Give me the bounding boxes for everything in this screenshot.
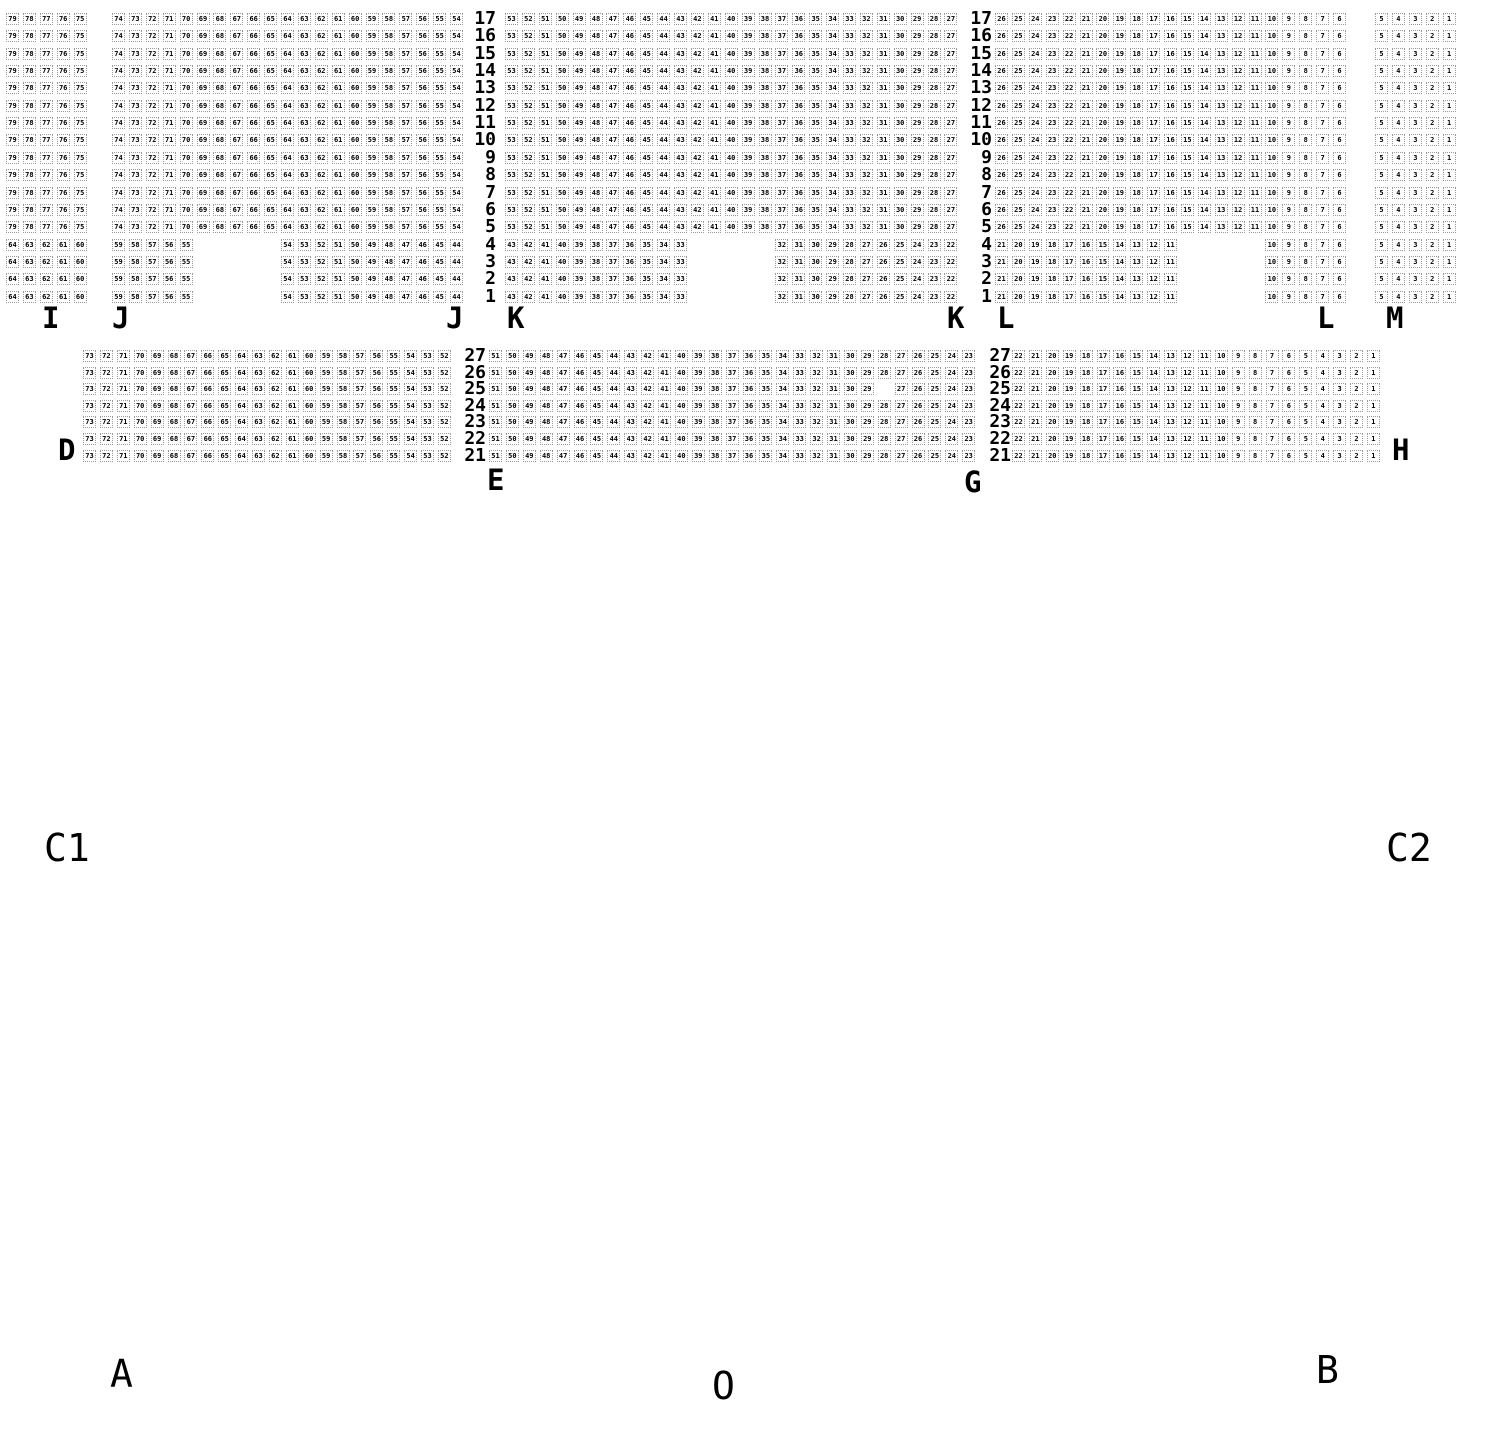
seat[interactable]: 8 xyxy=(1249,383,1262,395)
seat[interactable]: 62 xyxy=(315,204,328,216)
seat[interactable]: 10 xyxy=(1265,239,1278,251)
seat[interactable]: 77 xyxy=(40,100,53,112)
seat[interactable]: 29 xyxy=(911,30,924,42)
seat[interactable]: 43 xyxy=(624,367,637,379)
seat[interactable]: 29 xyxy=(911,48,924,60)
seat[interactable]: 41 xyxy=(658,400,671,412)
seat[interactable]: 65 xyxy=(264,134,277,146)
seat[interactable]: 11 xyxy=(1198,367,1211,379)
seat[interactable]: 61 xyxy=(332,117,345,129)
seat[interactable]: 79 xyxy=(6,221,19,233)
seat[interactable]: 44 xyxy=(657,13,670,25)
seat[interactable]: 48 xyxy=(590,48,603,60)
seat[interactable]: 51 xyxy=(489,416,502,428)
seat[interactable]: 35 xyxy=(809,204,822,216)
seat[interactable]: 72 xyxy=(146,204,159,216)
seat[interactable]: 22 xyxy=(1063,221,1076,233)
seat[interactable]: 71 xyxy=(117,416,130,428)
seat[interactable]: 8 xyxy=(1299,204,1312,216)
seat[interactable]: 25 xyxy=(1012,134,1025,146)
seat[interactable]: 24 xyxy=(911,291,924,303)
seat[interactable]: 44 xyxy=(657,117,670,129)
seat[interactable]: 7 xyxy=(1316,187,1329,199)
seat[interactable]: 18 xyxy=(1130,134,1143,146)
seat[interactable]: 67 xyxy=(230,204,243,216)
seat[interactable]: 17 xyxy=(1147,187,1160,199)
seat[interactable]: 30 xyxy=(844,400,857,412)
seat[interactable]: 60 xyxy=(349,221,362,233)
seat[interactable]: 13 xyxy=(1164,367,1177,379)
seat[interactable]: 24 xyxy=(1029,134,1042,146)
seat[interactable]: 52 xyxy=(438,433,451,445)
seat[interactable]: 50 xyxy=(556,48,569,60)
seat[interactable]: 38 xyxy=(709,433,722,445)
seat[interactable]: 14 xyxy=(1198,13,1211,25)
seat[interactable]: 66 xyxy=(201,383,214,395)
seat[interactable]: 36 xyxy=(792,100,805,112)
seat[interactable]: 18 xyxy=(1080,416,1093,428)
seat[interactable]: 68 xyxy=(213,30,226,42)
seat[interactable]: 22 xyxy=(1012,383,1025,395)
seat[interactable]: 7 xyxy=(1316,48,1329,60)
seat[interactable]: 68 xyxy=(213,100,226,112)
seat[interactable]: 40 xyxy=(725,30,738,42)
seat[interactable]: 12 xyxy=(1181,367,1194,379)
seat[interactable]: 23 xyxy=(928,239,941,251)
seat[interactable]: 45 xyxy=(640,100,653,112)
seat[interactable]: 63 xyxy=(252,350,265,362)
seat[interactable]: 42 xyxy=(691,204,704,216)
seat[interactable]: 16 xyxy=(1080,291,1093,303)
seat[interactable]: 66 xyxy=(247,13,260,25)
seat[interactable]: 9 xyxy=(1282,169,1295,181)
seat[interactable]: 56 xyxy=(163,273,176,285)
seat[interactable]: 29 xyxy=(911,117,924,129)
seat[interactable]: 67 xyxy=(230,221,243,233)
seat[interactable]: 13 xyxy=(1164,383,1177,395)
seat[interactable]: 76 xyxy=(57,134,70,146)
seat[interactable]: 70 xyxy=(180,82,193,94)
seat[interactable]: 79 xyxy=(6,13,19,25)
seat[interactable]: 50 xyxy=(349,291,362,303)
seat[interactable]: 66 xyxy=(247,100,260,112)
seat[interactable]: 44 xyxy=(657,221,670,233)
seat[interactable]: 14 xyxy=(1198,221,1211,233)
seat[interactable]: 41 xyxy=(658,383,671,395)
seat[interactable]: 53 xyxy=(298,256,311,268)
seat[interactable]: 1 xyxy=(1443,204,1456,216)
seat[interactable]: 30 xyxy=(844,416,857,428)
seat[interactable]: 60 xyxy=(303,433,316,445)
seat[interactable]: 11 xyxy=(1249,117,1262,129)
seat[interactable]: 39 xyxy=(573,291,586,303)
seat[interactable]: 21 xyxy=(995,256,1008,268)
seat[interactable]: 60 xyxy=(303,416,316,428)
seat[interactable]: 28 xyxy=(843,239,856,251)
seat[interactable]: 4 xyxy=(1392,169,1405,181)
seat[interactable]: 36 xyxy=(743,416,756,428)
seat[interactable]: 57 xyxy=(399,48,412,60)
seat[interactable]: 44 xyxy=(657,100,670,112)
seat[interactable]: 75 xyxy=(74,204,87,216)
seat[interactable]: 60 xyxy=(349,13,362,25)
seat[interactable]: 68 xyxy=(168,400,181,412)
seat[interactable]: 61 xyxy=(286,367,299,379)
seat[interactable]: 18 xyxy=(1130,152,1143,164)
seat[interactable]: 33 xyxy=(843,48,856,60)
seat[interactable]: 76 xyxy=(57,65,70,77)
seat[interactable]: 20 xyxy=(1046,350,1059,362)
seat[interactable]: 61 xyxy=(332,152,345,164)
seat[interactable]: 48 xyxy=(540,350,553,362)
seat[interactable]: 13 xyxy=(1215,48,1228,60)
seat[interactable]: 56 xyxy=(370,450,383,462)
seat[interactable]: 44 xyxy=(657,204,670,216)
seat[interactable]: 71 xyxy=(117,350,130,362)
seat[interactable]: 32 xyxy=(775,256,788,268)
seat[interactable]: 54 xyxy=(404,367,417,379)
seat[interactable]: 66 xyxy=(247,65,260,77)
seat[interactable]: 59 xyxy=(320,350,333,362)
seat[interactable]: 11 xyxy=(1249,100,1262,112)
seat[interactable]: 79 xyxy=(6,152,19,164)
seat[interactable]: 75 xyxy=(74,117,87,129)
seat[interactable]: 34 xyxy=(776,367,789,379)
seat[interactable]: 11 xyxy=(1249,169,1262,181)
seat[interactable]: 41 xyxy=(539,239,552,251)
seat[interactable]: 21 xyxy=(1080,65,1093,77)
seat[interactable]: 3 xyxy=(1409,117,1422,129)
seat[interactable]: 6 xyxy=(1333,117,1346,129)
seat[interactable]: 60 xyxy=(349,169,362,181)
seat[interactable]: 69 xyxy=(197,169,210,181)
seat[interactable]: 51 xyxy=(539,30,552,42)
seat[interactable]: 6 xyxy=(1333,291,1346,303)
seat[interactable]: 27 xyxy=(944,65,957,77)
seat[interactable]: 4 xyxy=(1392,221,1405,233)
seat[interactable]: 78 xyxy=(23,13,36,25)
seat[interactable]: 12 xyxy=(1232,65,1245,77)
seat[interactable]: 9 xyxy=(1282,13,1295,25)
seat[interactable]: 38 xyxy=(759,100,772,112)
seat[interactable]: 57 xyxy=(353,367,366,379)
seat[interactable]: 28 xyxy=(878,450,891,462)
seat[interactable]: 27 xyxy=(944,48,957,60)
seat[interactable]: 61 xyxy=(332,204,345,216)
seat[interactable]: 2 xyxy=(1350,433,1363,445)
seat[interactable]: 24 xyxy=(945,400,958,412)
seat[interactable]: 47 xyxy=(606,100,619,112)
seat[interactable]: 8 xyxy=(1249,367,1262,379)
seat[interactable]: 21 xyxy=(1029,416,1042,428)
seat[interactable]: 28 xyxy=(928,204,941,216)
seat[interactable]: 50 xyxy=(556,187,569,199)
seat[interactable]: 67 xyxy=(184,416,197,428)
seat[interactable]: 8 xyxy=(1299,100,1312,112)
seat[interactable]: 50 xyxy=(556,30,569,42)
seat[interactable]: 52 xyxy=(522,13,535,25)
seat[interactable]: 28 xyxy=(878,400,891,412)
seat[interactable]: 43 xyxy=(674,30,687,42)
seat[interactable]: 33 xyxy=(843,169,856,181)
seat[interactable]: 76 xyxy=(57,82,70,94)
seat[interactable]: 70 xyxy=(180,30,193,42)
seat[interactable]: 28 xyxy=(928,82,941,94)
seat[interactable]: 15 xyxy=(1130,367,1143,379)
seat[interactable]: 41 xyxy=(658,450,671,462)
seat[interactable]: 45 xyxy=(590,350,603,362)
seat[interactable]: 45 xyxy=(640,13,653,25)
seat[interactable]: 41 xyxy=(708,117,721,129)
seat[interactable]: 18 xyxy=(1130,187,1143,199)
seat[interactable]: 27 xyxy=(860,239,873,251)
seat[interactable]: 4 xyxy=(1392,48,1405,60)
seat[interactable]: 29 xyxy=(911,204,924,216)
seat[interactable]: 19 xyxy=(1113,187,1126,199)
seat[interactable]: 47 xyxy=(399,256,412,268)
seat[interactable]: 4 xyxy=(1316,433,1329,445)
seat[interactable]: 4 xyxy=(1392,239,1405,251)
seat[interactable]: 33 xyxy=(843,82,856,94)
seat[interactable]: 30 xyxy=(894,221,907,233)
seat[interactable]: 23 xyxy=(962,367,975,379)
seat[interactable]: 64 xyxy=(235,350,248,362)
seat[interactable]: 52 xyxy=(522,82,535,94)
seat[interactable]: 16 xyxy=(1080,239,1093,251)
seat[interactable]: 61 xyxy=(286,350,299,362)
seat[interactable]: 2 xyxy=(1350,350,1363,362)
seat[interactable]: 53 xyxy=(505,100,518,112)
seat[interactable]: 69 xyxy=(197,117,210,129)
seat[interactable]: 5 xyxy=(1375,169,1388,181)
seat[interactable]: 65 xyxy=(264,221,277,233)
seat[interactable]: 8 xyxy=(1249,416,1262,428)
seat[interactable]: 45 xyxy=(640,48,653,60)
seat[interactable]: 72 xyxy=(146,48,159,60)
seat[interactable]: 54 xyxy=(404,450,417,462)
seat[interactable]: 43 xyxy=(674,134,687,146)
seat[interactable]: 70 xyxy=(180,187,193,199)
seat[interactable]: 24 xyxy=(1029,82,1042,94)
seat[interactable]: 32 xyxy=(860,13,873,25)
seat[interactable]: 55 xyxy=(387,433,400,445)
seat[interactable]: 56 xyxy=(416,134,429,146)
seat[interactable]: 50 xyxy=(556,65,569,77)
seat[interactable]: 43 xyxy=(624,400,637,412)
seat[interactable]: 71 xyxy=(163,204,176,216)
seat[interactable]: 45 xyxy=(640,82,653,94)
seat[interactable]: 23 xyxy=(1046,117,1059,129)
seat[interactable]: 38 xyxy=(590,239,603,251)
seat[interactable]: 65 xyxy=(264,30,277,42)
seat[interactable]: 46 xyxy=(623,30,636,42)
seat[interactable]: 3 xyxy=(1333,433,1346,445)
seat[interactable]: 74 xyxy=(112,134,125,146)
seat[interactable]: 39 xyxy=(573,273,586,285)
seat[interactable]: 17 xyxy=(1147,100,1160,112)
seat[interactable]: 17 xyxy=(1147,48,1160,60)
seat[interactable]: 23 xyxy=(962,350,975,362)
seat[interactable]: 66 xyxy=(201,400,214,412)
seat[interactable]: 79 xyxy=(6,204,19,216)
seat[interactable]: 49 xyxy=(523,383,536,395)
seat[interactable]: 25 xyxy=(1012,13,1025,25)
seat[interactable]: 65 xyxy=(264,13,277,25)
seat[interactable]: 54 xyxy=(281,256,294,268)
seat[interactable]: 50 xyxy=(556,100,569,112)
seat[interactable]: 68 xyxy=(168,383,181,395)
seat[interactable]: 25 xyxy=(928,416,941,428)
seat[interactable]: 10 xyxy=(1265,221,1278,233)
seat[interactable]: 64 xyxy=(235,416,248,428)
seat[interactable]: 35 xyxy=(640,291,653,303)
seat[interactable]: 77 xyxy=(40,187,53,199)
seat[interactable]: 59 xyxy=(366,187,379,199)
seat[interactable]: 73 xyxy=(83,400,96,412)
seat[interactable]: 10 xyxy=(1215,450,1228,462)
seat[interactable]: 69 xyxy=(197,82,210,94)
seat[interactable]: 56 xyxy=(416,30,429,42)
seat[interactable]: 77 xyxy=(40,13,53,25)
seat[interactable]: 68 xyxy=(213,169,226,181)
seat[interactable]: 45 xyxy=(640,152,653,164)
seat[interactable]: 48 xyxy=(382,273,395,285)
seat[interactable]: 47 xyxy=(399,291,412,303)
seat[interactable]: 54 xyxy=(281,291,294,303)
seat[interactable]: 6 xyxy=(1282,400,1295,412)
seat[interactable]: 5 xyxy=(1375,204,1388,216)
seat[interactable]: 26 xyxy=(877,256,890,268)
seat[interactable]: 53 xyxy=(505,204,518,216)
seat[interactable]: 40 xyxy=(556,256,569,268)
seat[interactable]: 62 xyxy=(315,221,328,233)
seat[interactable]: 40 xyxy=(725,134,738,146)
seat[interactable]: 39 xyxy=(692,383,705,395)
seat[interactable]: 44 xyxy=(607,350,620,362)
seat[interactable]: 53 xyxy=(298,239,311,251)
seat[interactable]: 34 xyxy=(826,134,839,146)
seat[interactable]: 45 xyxy=(640,134,653,146)
seat[interactable]: 55 xyxy=(433,30,446,42)
seat[interactable]: 10 xyxy=(1265,134,1278,146)
seat[interactable]: 34 xyxy=(826,152,839,164)
seat[interactable]: 31 xyxy=(877,204,890,216)
seat[interactable]: 12 xyxy=(1232,187,1245,199)
seat[interactable]: 32 xyxy=(775,273,788,285)
seat[interactable]: 40 xyxy=(675,400,688,412)
seat[interactable]: 65 xyxy=(264,152,277,164)
seat[interactable]: 24 xyxy=(945,350,958,362)
seat[interactable]: 49 xyxy=(573,204,586,216)
seat[interactable]: 35 xyxy=(759,400,772,412)
seat[interactable]: 56 xyxy=(163,239,176,251)
seat[interactable]: 35 xyxy=(759,416,772,428)
seat[interactable]: 31 xyxy=(877,100,890,112)
seat[interactable]: 13 xyxy=(1215,134,1228,146)
seat[interactable]: 22 xyxy=(944,239,957,251)
seat[interactable]: 66 xyxy=(247,82,260,94)
seat[interactable]: 71 xyxy=(163,48,176,60)
seat[interactable]: 76 xyxy=(57,100,70,112)
seat[interactable]: 69 xyxy=(151,367,164,379)
seat[interactable]: 52 xyxy=(315,256,328,268)
seat[interactable]: 48 xyxy=(590,134,603,146)
seat[interactable]: 73 xyxy=(129,152,142,164)
seat[interactable]: 14 xyxy=(1198,204,1211,216)
seat[interactable]: 48 xyxy=(590,187,603,199)
seat[interactable]: 26 xyxy=(995,187,1008,199)
seat[interactable]: 18 xyxy=(1130,82,1143,94)
seat[interactable]: 63 xyxy=(252,450,265,462)
seat[interactable]: 16 xyxy=(1164,221,1177,233)
seat[interactable]: 64 xyxy=(281,65,294,77)
seat[interactable]: 26 xyxy=(912,350,925,362)
seat[interactable]: 10 xyxy=(1265,169,1278,181)
seat[interactable]: 23 xyxy=(962,433,975,445)
seat[interactable]: 22 xyxy=(1012,416,1025,428)
seat[interactable]: 1 xyxy=(1443,117,1456,129)
seat[interactable]: 23 xyxy=(962,450,975,462)
seat[interactable]: 23 xyxy=(962,383,975,395)
seat[interactable]: 43 xyxy=(624,450,637,462)
seat[interactable]: 68 xyxy=(213,152,226,164)
seat[interactable]: 25 xyxy=(1012,152,1025,164)
seat[interactable]: 14 xyxy=(1113,291,1126,303)
seat[interactable]: 48 xyxy=(540,367,553,379)
seat[interactable]: 65 xyxy=(218,350,231,362)
seat[interactable]: 24 xyxy=(945,433,958,445)
seat[interactable]: 54 xyxy=(450,221,463,233)
seat[interactable]: 26 xyxy=(995,169,1008,181)
seat[interactable]: 77 xyxy=(40,204,53,216)
seat[interactable]: 31 xyxy=(792,273,805,285)
seat[interactable]: 18 xyxy=(1130,13,1143,25)
seat[interactable]: 72 xyxy=(100,350,113,362)
seat[interactable]: 67 xyxy=(230,152,243,164)
seat[interactable]: 62 xyxy=(269,416,282,428)
seat[interactable]: 10 xyxy=(1265,204,1278,216)
seat[interactable]: 43 xyxy=(505,239,518,251)
seat[interactable]: 71 xyxy=(163,134,176,146)
seat[interactable]: 59 xyxy=(366,169,379,181)
seat[interactable]: 36 xyxy=(743,350,756,362)
seat[interactable]: 50 xyxy=(506,400,519,412)
seat[interactable]: 24 xyxy=(1029,187,1042,199)
seat[interactable]: 17 xyxy=(1147,204,1160,216)
seat[interactable]: 15 xyxy=(1130,433,1143,445)
seat[interactable]: 25 xyxy=(928,383,941,395)
seat[interactable]: 67 xyxy=(184,383,197,395)
seat[interactable]: 68 xyxy=(168,450,181,462)
seat[interactable]: 20 xyxy=(1046,450,1059,462)
seat[interactable]: 39 xyxy=(742,100,755,112)
seat[interactable]: 4 xyxy=(1392,65,1405,77)
seat[interactable]: 31 xyxy=(877,169,890,181)
seat[interactable]: 4 xyxy=(1392,134,1405,146)
seat[interactable]: 31 xyxy=(827,350,840,362)
seat[interactable]: 72 xyxy=(146,117,159,129)
seat[interactable]: 67 xyxy=(184,433,197,445)
seat[interactable]: 11 xyxy=(1198,350,1211,362)
seat[interactable]: 34 xyxy=(776,383,789,395)
seat[interactable]: 73 xyxy=(129,204,142,216)
seat[interactable]: 41 xyxy=(708,82,721,94)
seat[interactable]: 55 xyxy=(387,383,400,395)
seat[interactable]: 16 xyxy=(1113,416,1126,428)
seat[interactable]: 47 xyxy=(557,383,570,395)
seat[interactable]: 1 xyxy=(1443,239,1456,251)
seat[interactable]: 53 xyxy=(298,291,311,303)
